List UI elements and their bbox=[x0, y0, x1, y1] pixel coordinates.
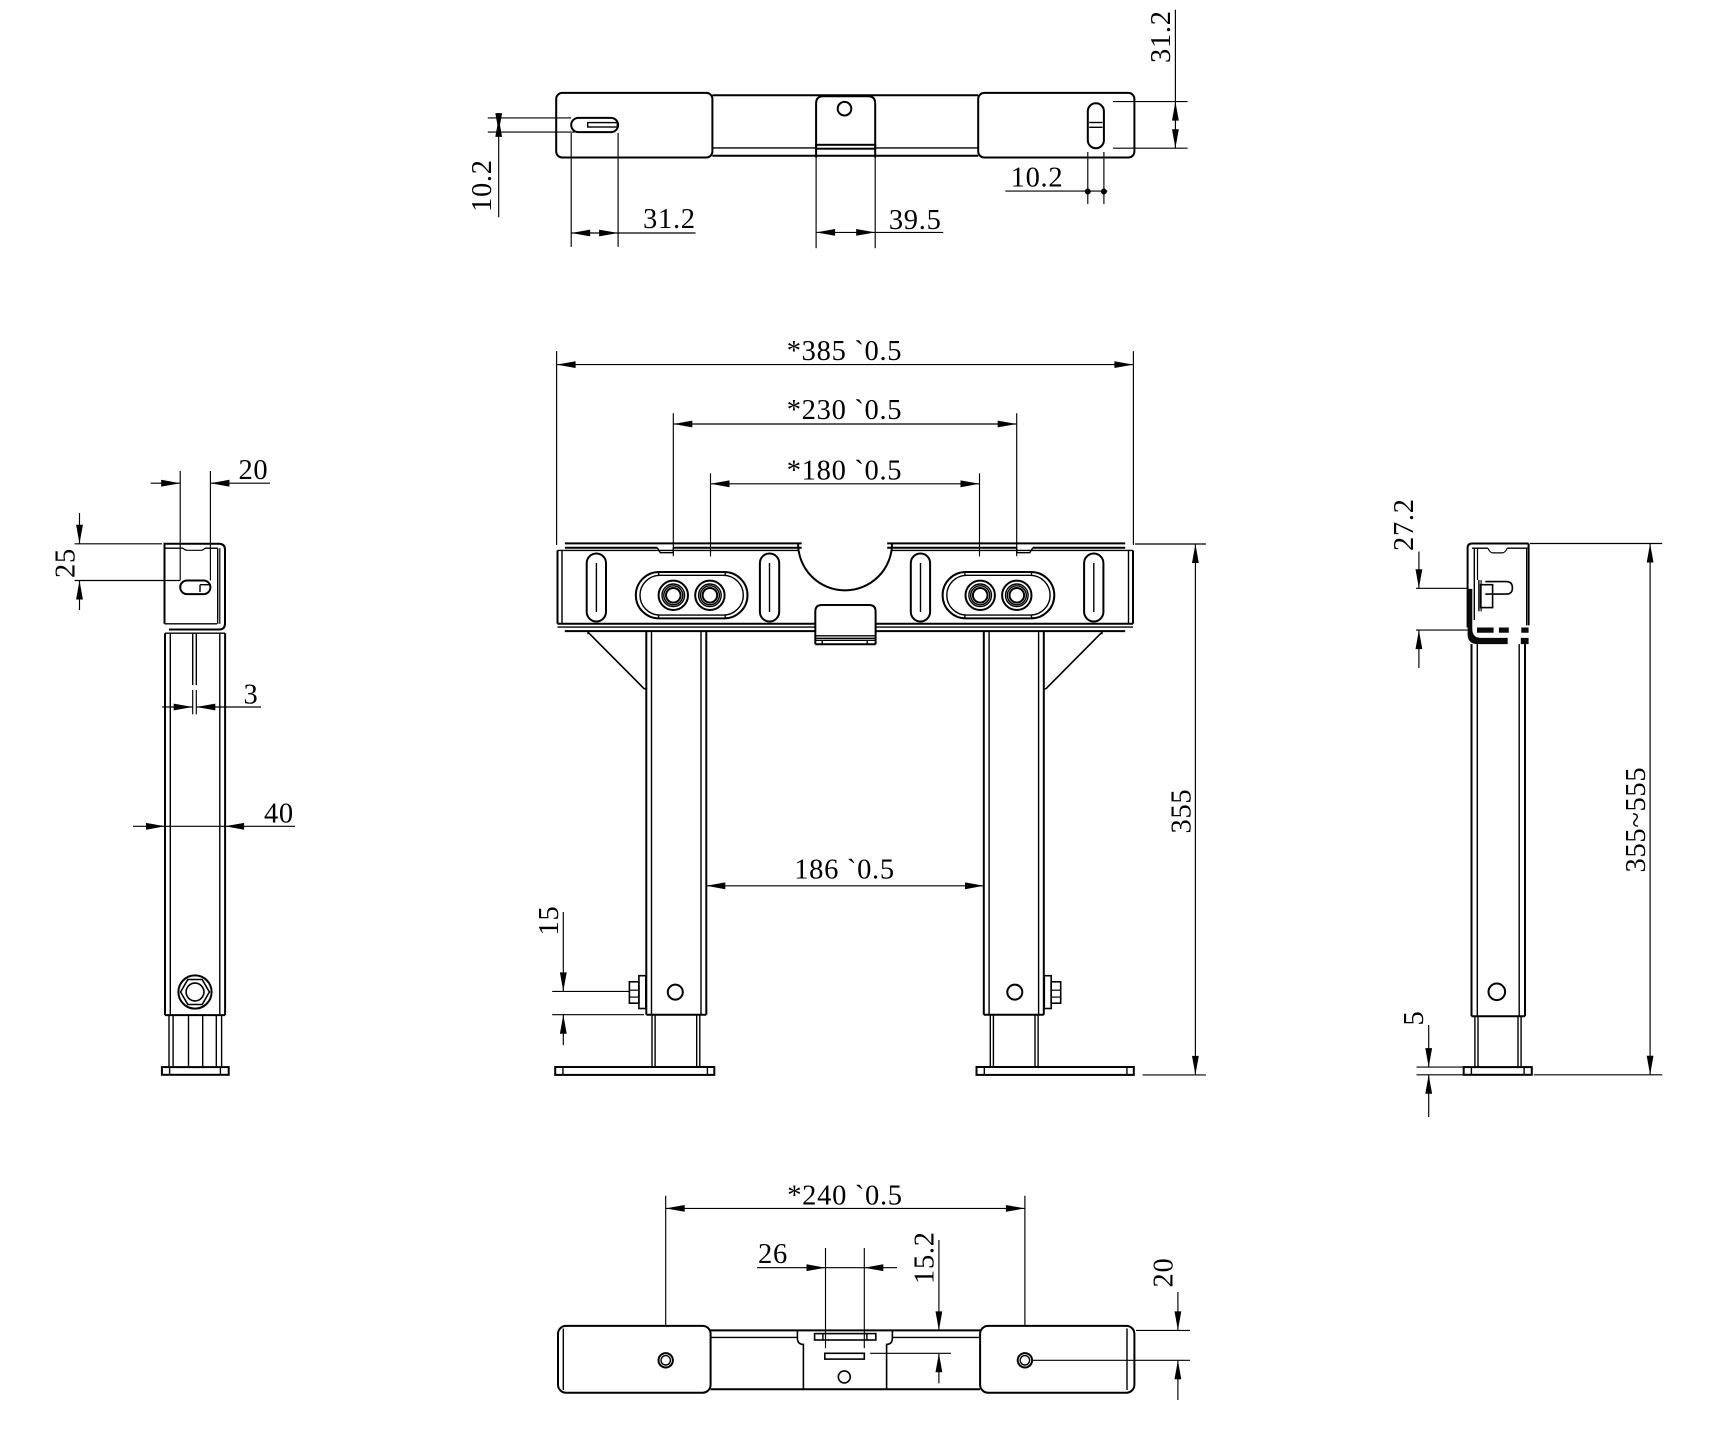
svg-text:26: 26 bbox=[758, 1239, 788, 1270]
svg-text:*230 `0.5: *230 `0.5 bbox=[787, 395, 903, 426]
svg-text:*180 `0.5: *180 `0.5 bbox=[787, 455, 903, 486]
svg-text:10.2: 10.2 bbox=[467, 159, 498, 212]
svg-text:25: 25 bbox=[51, 548, 82, 578]
svg-text:27.2: 27.2 bbox=[1389, 498, 1420, 551]
svg-text:5: 5 bbox=[1399, 1011, 1430, 1026]
svg-text:355~555: 355~555 bbox=[1621, 767, 1652, 873]
svg-text:15: 15 bbox=[534, 906, 565, 936]
svg-text:10.2: 10.2 bbox=[1011, 163, 1064, 194]
svg-text:20: 20 bbox=[1149, 1258, 1180, 1288]
svg-text:3: 3 bbox=[244, 680, 259, 711]
svg-text:40: 40 bbox=[264, 799, 294, 830]
svg-text:31.2: 31.2 bbox=[643, 204, 696, 235]
svg-text:15.2: 15.2 bbox=[910, 1231, 941, 1284]
svg-text:31.2: 31.2 bbox=[1146, 10, 1177, 63]
svg-text:20: 20 bbox=[238, 455, 268, 486]
svg-text:*385 `0.5: *385 `0.5 bbox=[787, 336, 903, 367]
svg-text:*240 `0.5: *240 `0.5 bbox=[787, 1180, 903, 1211]
svg-text:186 `0.5: 186 `0.5 bbox=[794, 855, 895, 886]
svg-text:39.5: 39.5 bbox=[889, 205, 942, 236]
svg-text:355: 355 bbox=[1167, 789, 1198, 834]
